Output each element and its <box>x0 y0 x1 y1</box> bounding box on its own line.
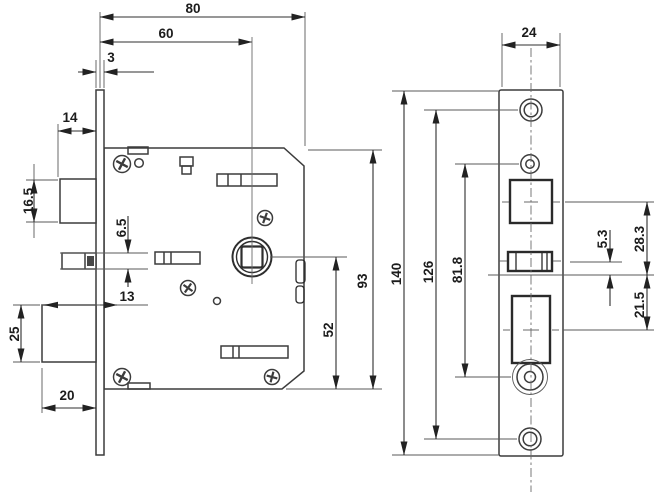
dim-80-label: 80 <box>185 1 200 16</box>
dim-24-label: 24 <box>521 25 537 40</box>
latch-bolt-side <box>60 179 96 223</box>
aux-bolt-block <box>87 256 94 266</box>
deadbolt-side <box>42 305 96 362</box>
dim-21-5-label: 21.5 <box>632 291 647 318</box>
dim-93-label: 93 <box>355 273 370 289</box>
drawing-canvas: 80 60 3 14 16.5 6.5 13 25 <box>0 0 658 500</box>
aux-bolt-front <box>508 252 552 271</box>
dim-16-5-label: 16.5 <box>21 187 36 214</box>
lock-technical-drawing: 80 60 3 14 16.5 6.5 13 25 <box>0 0 658 500</box>
lock-case-side-view <box>42 90 305 455</box>
dim-13-label: 13 <box>119 289 135 304</box>
dim-126-label: 126 <box>421 260 436 283</box>
dim-5-3-label: 5.3 <box>595 229 610 248</box>
dim-81-8-label: 81.8 <box>450 256 465 283</box>
dim-20-label: 20 <box>59 388 74 403</box>
dim-3-label: 3 <box>107 50 115 65</box>
lock-body-outline <box>104 148 304 389</box>
dim-140-label: 140 <box>389 263 404 286</box>
dim-52-label: 52 <box>321 322 336 337</box>
dim-14-label: 14 <box>62 110 78 125</box>
dim-25-label: 25 <box>7 326 22 342</box>
dim-60-label: 60 <box>158 26 173 41</box>
dim-28-3-label: 28.3 <box>632 225 647 252</box>
faceplate-edge <box>96 90 104 455</box>
dim-6-5-label: 6.5 <box>114 218 129 237</box>
